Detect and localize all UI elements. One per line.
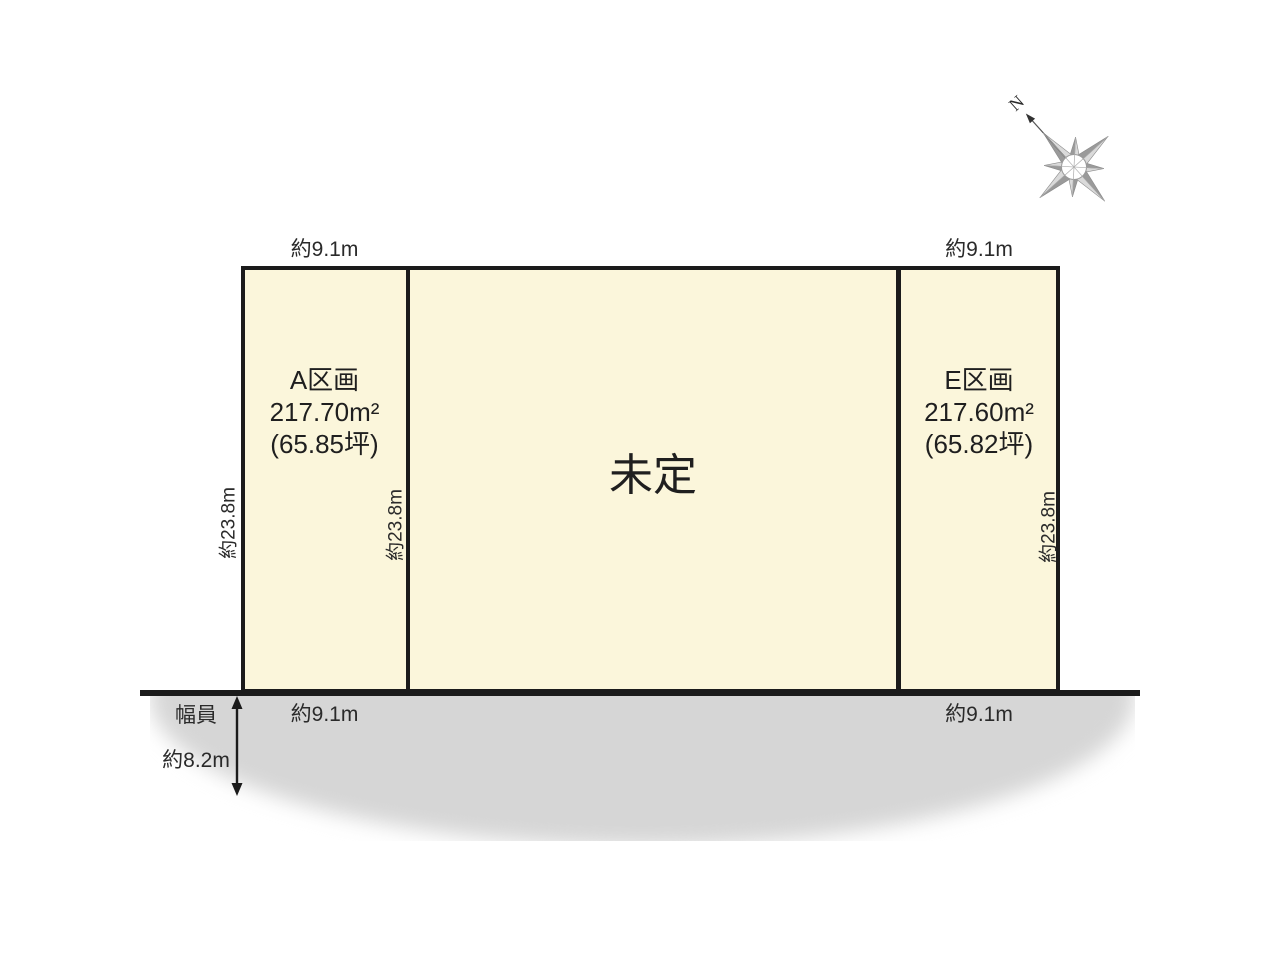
dimension-bottom-e: 約9.1m (898, 698, 1060, 728)
parcel-e-area-tsubo: (65.82坪) (898, 428, 1060, 460)
parcel-a-area-tsubo: (65.85坪) (243, 428, 406, 460)
dimension-top-e: 約9.1m (898, 233, 1060, 263)
parcel-e-label: E区画 217.60m² (65.82坪) (898, 364, 1060, 460)
dimension-right-side: 約23.8m (1034, 491, 1061, 563)
parcel-center-name: 未定 (410, 450, 896, 502)
parcel-e-area-m2: 217.60m² (898, 396, 1060, 428)
parcel-a-name: A区画 (243, 364, 406, 396)
road-edge-line (140, 690, 1140, 696)
parcel-center-label: 未定 (410, 450, 896, 502)
parcel-e-name: E区画 (898, 364, 1060, 396)
compass-rose: N (990, 88, 1140, 223)
dimension-middle-side: 約23.8m (381, 489, 408, 561)
parcel-a-label: A区画 217.70m² (65.85坪) (243, 364, 406, 460)
dimension-top-a: 約9.1m (243, 233, 406, 263)
north-label: N (1005, 91, 1028, 115)
road-width-arrow-icon (222, 694, 252, 798)
dimension-bottom-a: 約9.1m (243, 698, 406, 728)
parcel-a-area-m2: 217.70m² (243, 396, 406, 428)
dimension-left-side: 約23.8m (214, 487, 241, 559)
parcel-divider-center-e (896, 266, 901, 693)
